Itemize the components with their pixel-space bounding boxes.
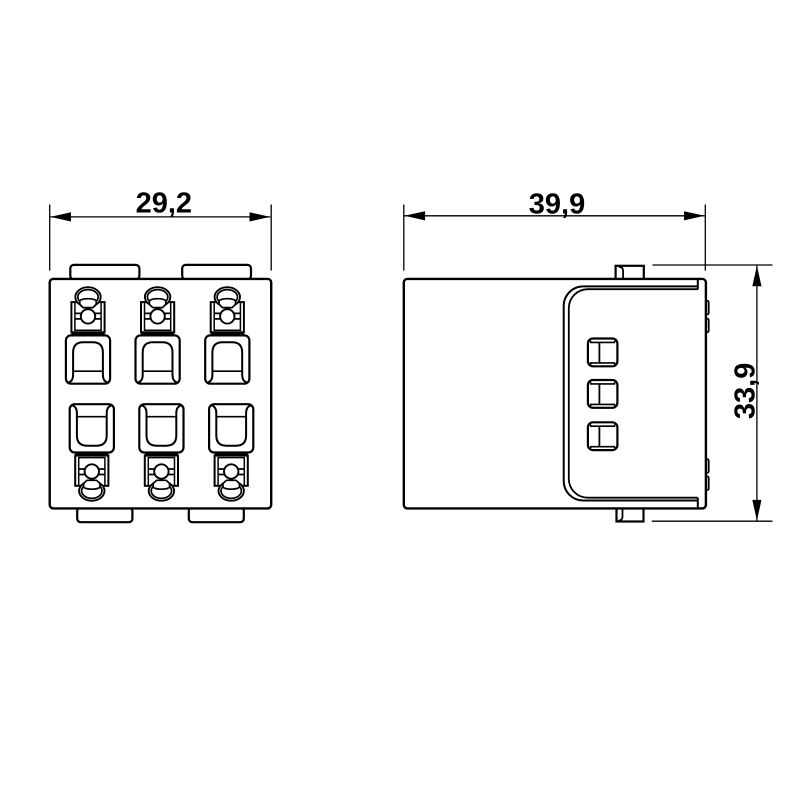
svg-text:33,9: 33,9 [729, 363, 761, 419]
svg-text:29,2: 29,2 [136, 188, 192, 220]
svg-text:39,9: 39,9 [529, 188, 585, 220]
